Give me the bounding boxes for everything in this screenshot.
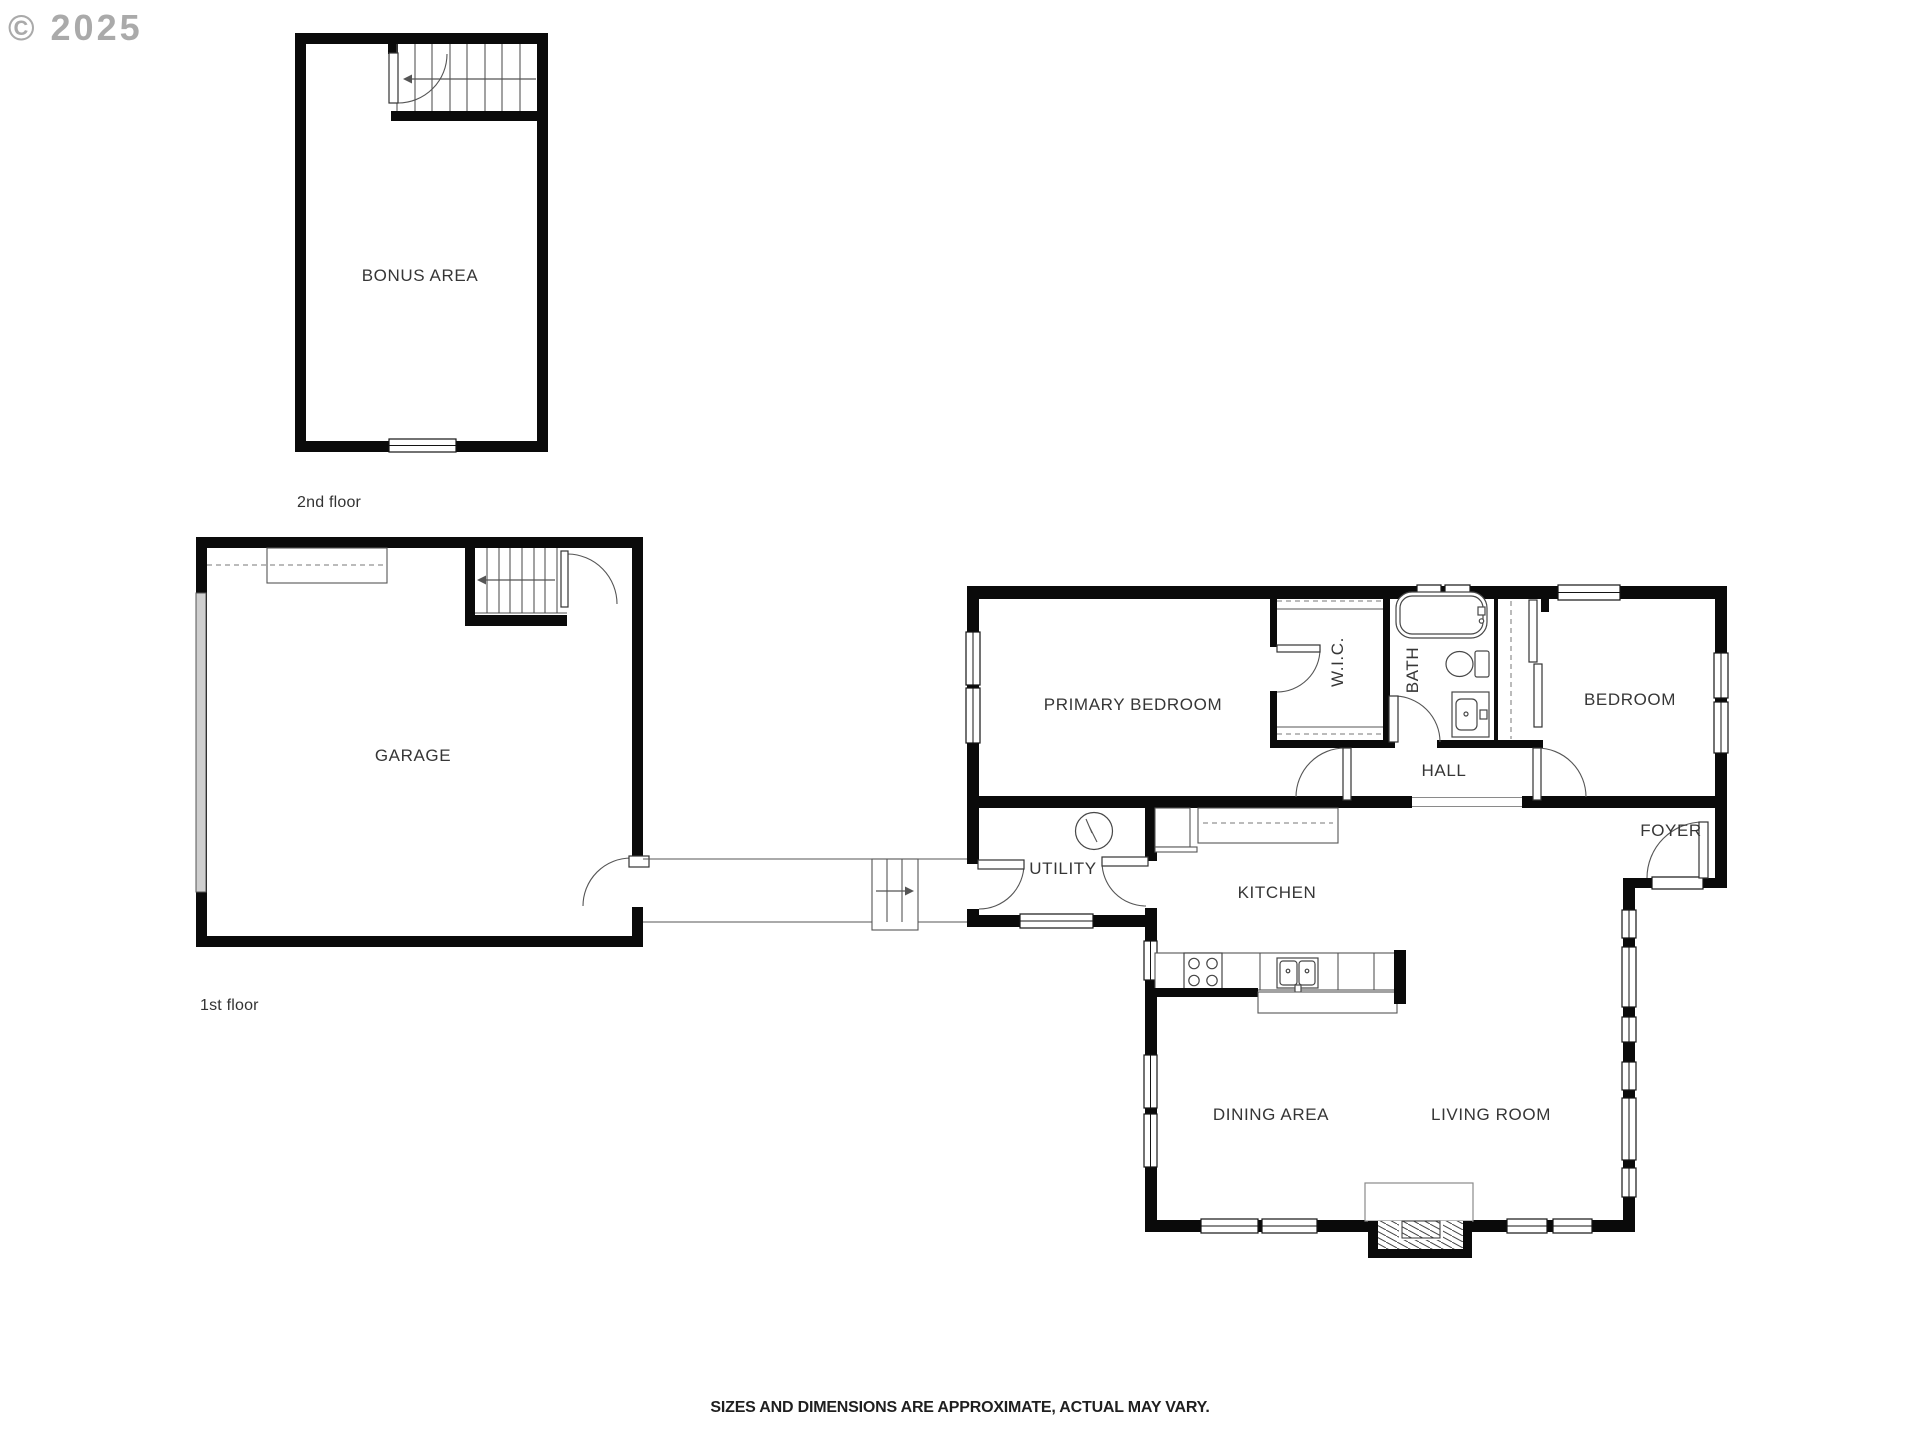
dining-window	[1144, 1114, 1157, 1167]
bedroom-north-window	[1558, 585, 1620, 600]
primary-bedroom-window	[966, 688, 980, 743]
upper-counter	[1198, 808, 1338, 843]
bonus-window	[389, 439, 456, 452]
room-label-kitchen: KITCHEN	[1238, 883, 1317, 902]
first-floor-plan: GARAGE	[196, 537, 1728, 1258]
primary-bedroom-window	[966, 632, 980, 685]
living-east-window	[1622, 1098, 1636, 1160]
bedroom-east-window	[1714, 702, 1728, 753]
kitchen-fixtures	[1150, 808, 1406, 1013]
living-east-window	[1622, 1062, 1636, 1090]
counter-end-wall	[1394, 950, 1406, 1004]
bedroom-east-window	[1714, 653, 1728, 698]
bedroom-door-swing-icon	[1533, 748, 1586, 800]
entry-steps-icon	[872, 859, 918, 930]
room-label-bedroom: BEDROOM	[1584, 690, 1676, 709]
range-stove-icon	[1184, 953, 1222, 992]
vanity-sink-icon	[1452, 692, 1489, 737]
bath-door-swing-icon	[1389, 696, 1440, 742]
second-floor-plan: BONUS AREA	[295, 33, 548, 452]
room-label-primary-bedroom: PRIMARY BEDROOM	[1044, 695, 1222, 714]
living-east-window	[1622, 1168, 1636, 1197]
floor-label-1st: 1st floor	[200, 997, 259, 1014]
room-label-living-room: LIVING ROOM	[1431, 1105, 1551, 1124]
sliding-door-panel	[1534, 664, 1542, 727]
utility-kitchen-door-swing-icon	[1102, 857, 1148, 906]
main-house: PRIMARY BEDROOM W.I.C. BATH BEDROOM HALL…	[966, 585, 1728, 1258]
living-east-window	[1622, 910, 1636, 938]
room-label-wic: W.I.C.	[1328, 637, 1347, 687]
bathtub-icon	[1396, 592, 1487, 638]
living-south-window	[1507, 1219, 1547, 1233]
toilet-icon	[1446, 651, 1489, 677]
bar-counter	[1258, 992, 1397, 1013]
room-label-bonus-area: BONUS AREA	[362, 266, 479, 285]
living-south-window	[1553, 1219, 1592, 1233]
house-walls	[967, 586, 1727, 1232]
utility-breezeway-door-swing-icon	[978, 860, 1024, 909]
living-east-window	[1622, 1017, 1636, 1042]
garage-door	[196, 593, 206, 892]
windows	[966, 585, 1728, 1233]
sliding-door-panel	[1529, 600, 1537, 662]
wic-door-swing-icon	[1277, 645, 1320, 692]
room-label-garage: GARAGE	[375, 746, 451, 765]
dining-south-window	[1262, 1219, 1317, 1233]
room-label-dining-area: DINING AREA	[1213, 1105, 1329, 1124]
room-label-bath: BATH	[1403, 647, 1422, 693]
living-east-window	[1622, 947, 1636, 1007]
bedroom-closet	[1511, 600, 1542, 739]
dining-window	[1144, 1055, 1157, 1108]
breezeway	[643, 859, 967, 930]
dining-south-window	[1201, 1219, 1258, 1233]
refrigerator-icon	[1155, 808, 1197, 852]
floor-plan-canvas: BONUS AREA 2nd floor	[0, 0, 1920, 1440]
water-heater-icon	[1076, 813, 1113, 850]
floor-label-2nd: 2nd floor	[297, 494, 362, 511]
disclaimer-text: SIZES AND DIMENSIONS ARE APPROXIMATE, AC…	[710, 1399, 1209, 1416]
front-door-sill	[1652, 877, 1703, 889]
utility-window	[1020, 914, 1093, 928]
room-label-hall: HALL	[1422, 761, 1467, 780]
room-label-foyer: FOYER	[1640, 821, 1702, 840]
garage: GARAGE	[196, 537, 649, 947]
copyright-watermark: © 2025	[8, 7, 143, 48]
primary-bedroom-door-swing-icon	[1296, 748, 1351, 800]
fireplace-icon	[1365, 1183, 1473, 1258]
room-label-utility: UTILITY	[1029, 859, 1097, 878]
kitchen-sink-icon	[1277, 958, 1318, 993]
hall-cased-opening	[1412, 798, 1522, 807]
counter-half-wall	[1150, 988, 1258, 997]
